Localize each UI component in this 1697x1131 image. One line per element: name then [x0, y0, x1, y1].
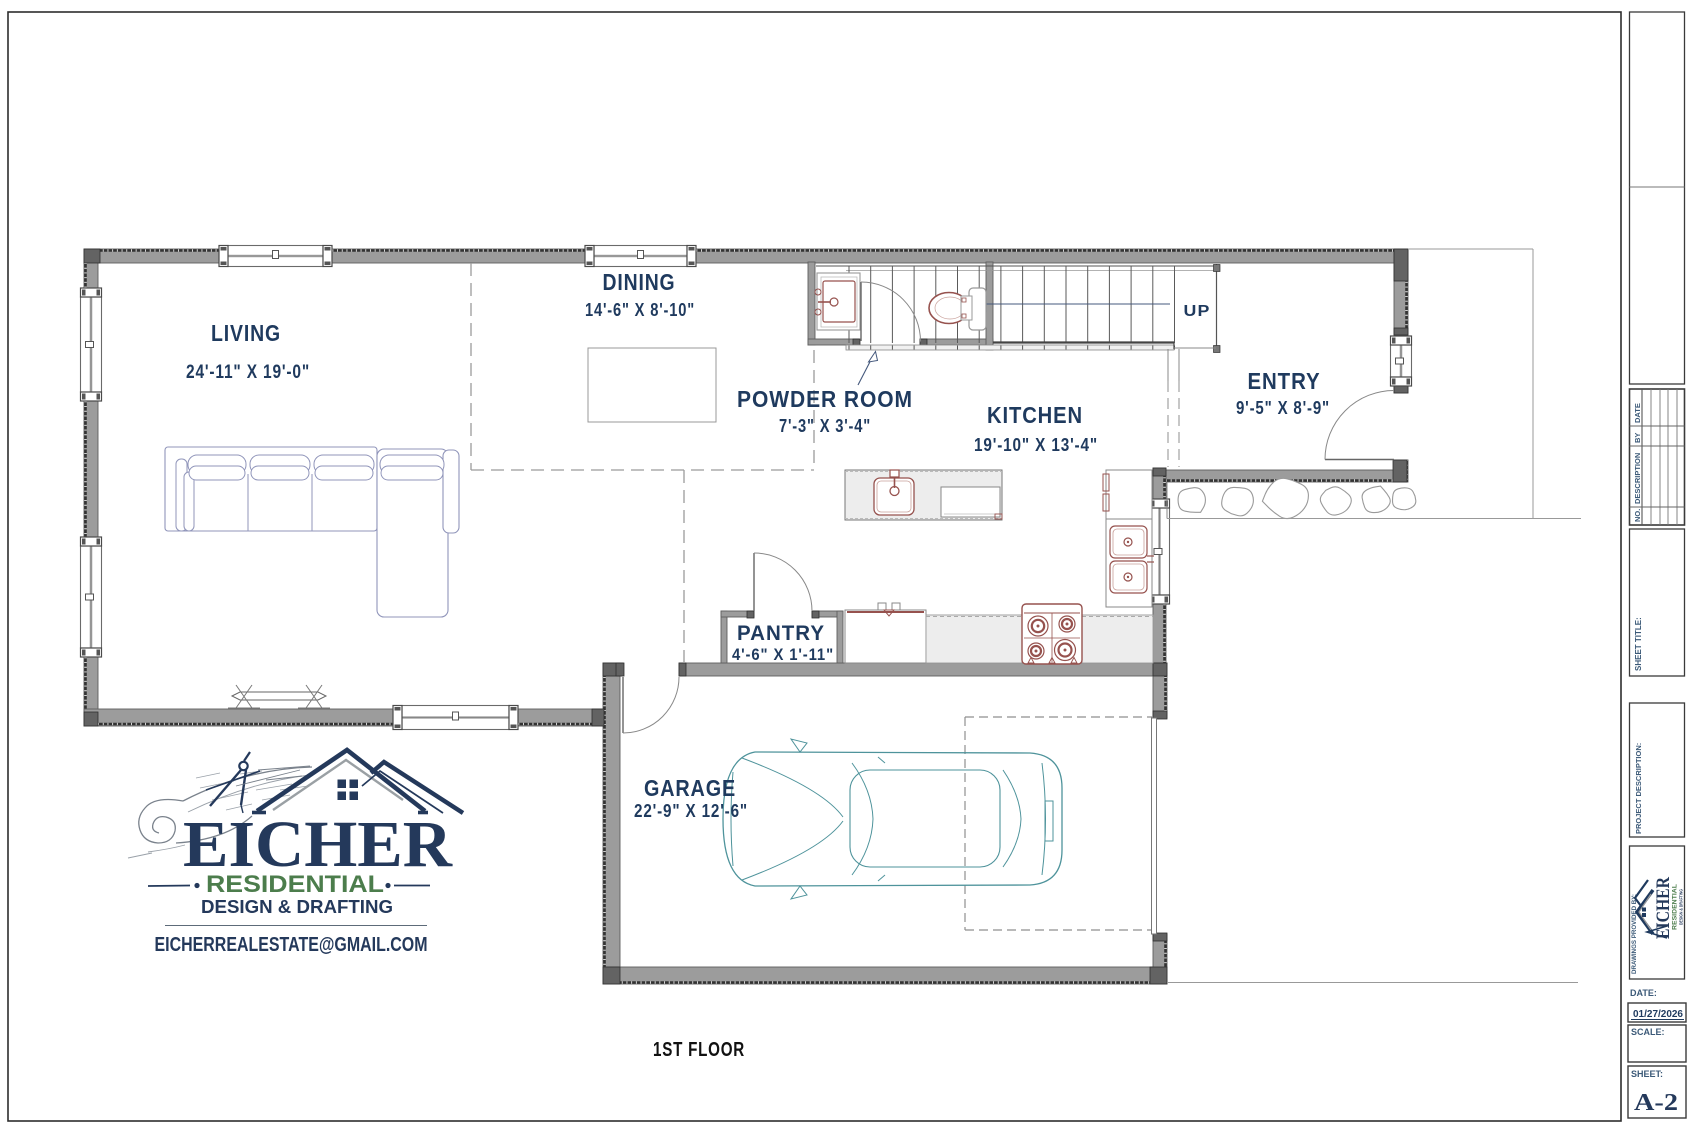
svg-text:GARAGE: GARAGE — [644, 775, 736, 801]
svg-text:PANTRY: PANTRY — [737, 622, 825, 645]
svg-text:24'-11" X 19'-0": 24'-11" X 19'-0" — [186, 362, 310, 383]
svg-text:UP: UP — [1184, 303, 1211, 320]
svg-text:EICHERREALESTATE@GMAIL.COM: EICHERREALESTATE@GMAIL.COM — [155, 934, 428, 956]
svg-text:22'-9" X 12'-6": 22'-9" X 12'-6" — [634, 801, 748, 821]
svg-text:DRAWINGS PROVIDED BY:: DRAWINGS PROVIDED BY: — [1631, 894, 1638, 974]
svg-text:14'-6" X 8'-10": 14'-6" X 8'-10" — [585, 300, 695, 320]
svg-text:ENTRY: ENTRY — [1248, 368, 1321, 394]
svg-text:RESIDENTIAL: RESIDENTIAL — [206, 871, 384, 898]
svg-text:POWDER ROOM: POWDER ROOM — [737, 386, 913, 412]
svg-text:1ST FLOOR: 1ST FLOOR — [653, 1039, 745, 1061]
svg-text:DATE:: DATE: — [1630, 988, 1657, 998]
svg-text:NO.: NO. — [1633, 509, 1642, 522]
svg-text:DINING: DINING — [603, 269, 676, 295]
svg-text:PROJECT DESCRIPTION:: PROJECT DESCRIPTION: — [1634, 743, 1643, 834]
svg-text:DESIGN & DRAFTING: DESIGN & DRAFTING — [1679, 889, 1684, 925]
svg-text:SCALE:: SCALE: — [1631, 1027, 1665, 1037]
svg-text:KITCHEN: KITCHEN — [987, 402, 1083, 428]
svg-text:A-2: A-2 — [1634, 1090, 1678, 1116]
svg-text:DESIGN & DRAFTING: DESIGN & DRAFTING — [201, 896, 393, 917]
svg-text:LIVING: LIVING — [211, 320, 281, 346]
svg-text:7'-3" X 3'-4": 7'-3" X 3'-4" — [779, 416, 871, 436]
svg-text:01/27/2026: 01/27/2026 — [1633, 1008, 1683, 1020]
svg-text:DESCRIPTION: DESCRIPTION — [1633, 453, 1642, 504]
svg-text:SHEET:: SHEET: — [1631, 1069, 1663, 1079]
svg-text:DATE: DATE — [1633, 403, 1642, 423]
svg-text:4'-6" X 1'-11": 4'-6" X 1'-11" — [732, 645, 834, 664]
svg-text:19'-10" X 13'-4": 19'-10" X 13'-4" — [974, 435, 1098, 455]
svg-text:SHEET TITLE:: SHEET TITLE: — [1634, 617, 1643, 671]
svg-text:EICHER: EICHER — [1653, 877, 1674, 939]
svg-text:9'-5" X 8'-9": 9'-5" X 8'-9" — [1236, 398, 1330, 418]
svg-text:BY: BY — [1633, 433, 1642, 443]
